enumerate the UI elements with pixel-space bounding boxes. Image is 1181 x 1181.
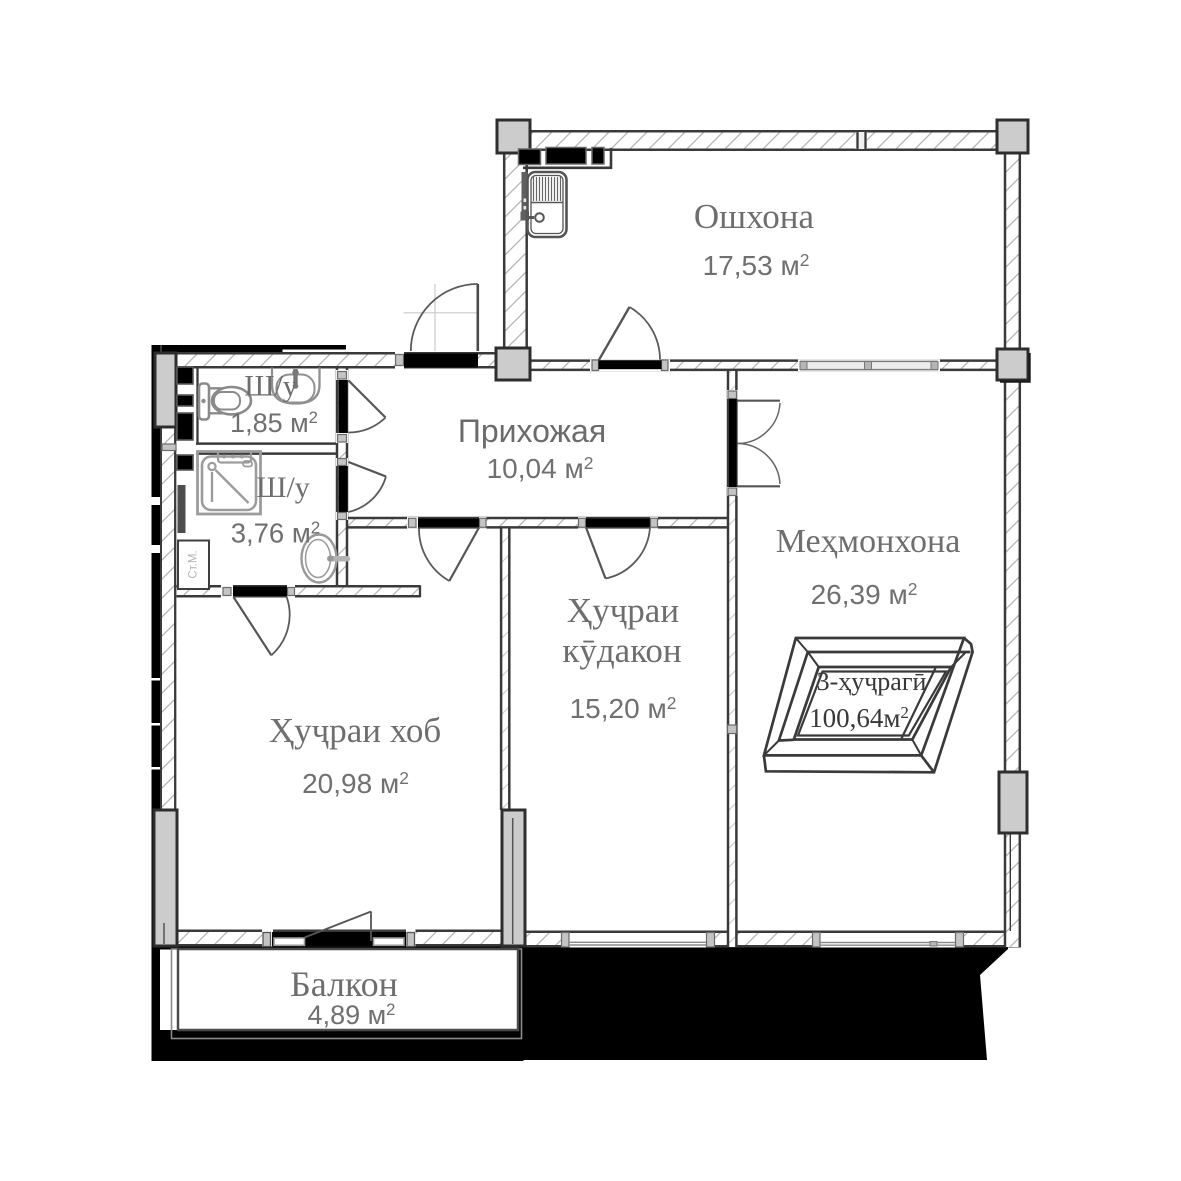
svg-text:Меҳмонхона: Меҳмонхона xyxy=(776,523,961,560)
svg-text:20,98 м2: 20,98 м2 xyxy=(302,768,409,799)
svg-text:4,89 м2: 4,89 м2 xyxy=(308,1000,396,1030)
svg-text:Балкон: Балкон xyxy=(290,964,398,1004)
svg-text:15,20 м2: 15,20 м2 xyxy=(570,693,677,724)
svg-text:1,85 м2: 1,85 м2 xyxy=(230,408,318,438)
svg-text:10,04 м2: 10,04 м2 xyxy=(487,453,594,484)
svg-text:3,76 м2: 3,76 м2 xyxy=(231,518,321,549)
svg-text:Ш/у: Ш/у xyxy=(256,471,310,504)
svg-text:100,64м2: 100,64м2 xyxy=(809,703,909,733)
svg-text:Ҳуҷраи: Ҳуҷраи xyxy=(567,591,679,630)
svg-text:Ст.М.: Ст.М. xyxy=(188,550,200,578)
svg-text:кӯдакон: кӯдакон xyxy=(562,631,681,670)
svg-text:26,39 м2: 26,39 м2 xyxy=(811,579,918,610)
svg-text:Прихожая: Прихожая xyxy=(458,413,606,449)
svg-text:3-ҳуҷрагӣ: 3-ҳуҷрагӣ xyxy=(817,667,927,696)
svg-text:Ш/у: Ш/у xyxy=(244,370,298,403)
svg-text:Ошхона: Ошхона xyxy=(694,197,815,236)
svg-text:Ҳуҷраи хоб: Ҳуҷраи хоб xyxy=(269,711,441,750)
svg-text:17,53 м2: 17,53 м2 xyxy=(703,250,810,281)
